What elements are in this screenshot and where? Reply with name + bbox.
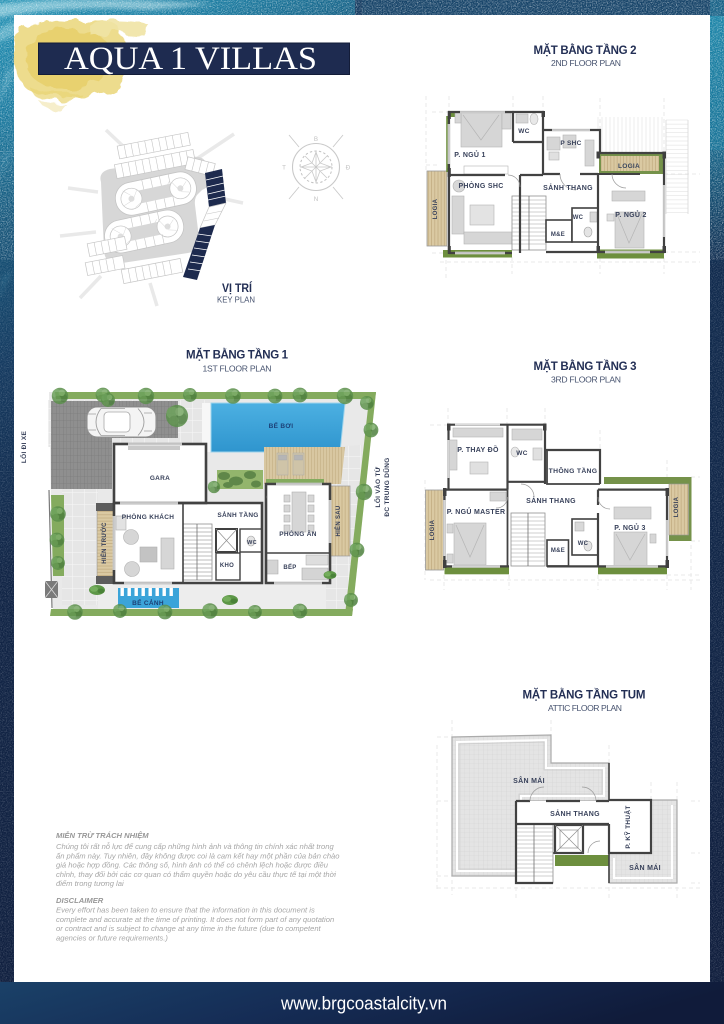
svg-text:HIÊN SAU: HIÊN SAU [334, 505, 342, 536]
svg-text:PHÒNG ĂN: PHÒNG ĂN [279, 529, 316, 538]
svg-text:Chúng tôi rất nỗ lực để cung c: Chúng tôi rất nỗ lực để cung cấp những h… [56, 842, 334, 851]
svg-text:điểm trong tương lai: điểm trong tương lai [56, 879, 124, 888]
svg-text:WC: WC [247, 540, 257, 546]
svg-text:PHÒNG SHC: PHÒNG SHC [458, 181, 503, 190]
svg-text:AQUA 1 VILLAS: AQUA 1 VILLAS [64, 41, 317, 77]
svg-text:agencies or future requirement: agencies or future requirements.) [56, 933, 168, 942]
svg-text:P. NGỦ 2: P. NGỦ 2 [615, 210, 646, 219]
svg-text:SẢNH THANG: SẢNH THANG [543, 183, 593, 192]
svg-text:www.brgcoastalcity.vn: www.brgcoastalcity.vn [280, 994, 447, 1014]
svg-text:BỂ CẢNH: BỂ CẢNH [132, 598, 164, 607]
svg-text:B: B [314, 136, 318, 143]
svg-text:KHO: KHO [220, 563, 234, 569]
svg-text:giá hoặc hợp đồng. Các thông s: giá hoặc hợp đồng. Các thông số, hình ản… [56, 861, 329, 870]
svg-text:T: T [282, 165, 286, 172]
svg-text:SẢNH THANG: SẢNH THANG [550, 809, 600, 818]
svg-text:SÂN MÁI: SÂN MÁI [513, 776, 545, 785]
svg-text:P. NGỦ 3: P. NGỦ 3 [614, 523, 645, 532]
svg-text:WC: WC [518, 128, 529, 135]
svg-text:N: N [314, 196, 318, 203]
svg-text:WC: WC [573, 215, 584, 221]
svg-text:VỊ TRÍ: VỊ TRÍ [222, 282, 253, 295]
svg-text:M&E: M&E [551, 548, 565, 554]
svg-text:MẶT BẰNG TẦNG 1: MẶT BẰNG TẦNG 1 [186, 349, 289, 362]
svg-text:LOGIA: LOGIA [430, 519, 436, 540]
svg-text:Every effort has been taken to: Every effort has been taken to ensure th… [56, 906, 315, 915]
svg-text:LOGIA: LOGIA [433, 198, 439, 219]
svg-text:SÂN MÁI: SÂN MÁI [629, 863, 661, 872]
svg-text:ấn phẩm này. Tuy nhiên, đây kh: ấn phẩm này. Tuy nhiên, đây không được c… [56, 851, 340, 860]
svg-text:GARA: GARA [150, 475, 170, 482]
svg-text:P. NGỦ MASTER: P. NGỦ MASTER [447, 507, 506, 516]
svg-text:MIỄN TRỪ TRÁCH NHIỆM: MIỄN TRỪ TRÁCH NHIỆM [56, 831, 149, 840]
svg-text:P. KỸ THUẬT: P. KỸ THUẬT [623, 805, 632, 848]
svg-text:WC: WC [516, 450, 527, 457]
svg-text:P SHC: P SHC [560, 140, 581, 147]
svg-text:KEY PLAN: KEY PLAN [217, 295, 255, 305]
svg-text:complete and accurate at the t: complete and accurate at the time of pri… [56, 915, 334, 924]
svg-text:MẶT BẰNG TẦNG TUM: MẶT BẰNG TẦNG TUM [523, 689, 646, 702]
svg-text:Đ: Đ [346, 165, 351, 172]
svg-text:3RD FLOOR PLAN: 3RD FLOOR PLAN [551, 375, 621, 385]
svg-text:BẾP: BẾP [283, 564, 296, 571]
svg-text:LOGIA: LOGIA [674, 496, 680, 517]
svg-text:SẢNH THANG: SẢNH THANG [526, 496, 576, 505]
svg-text:LOGIA: LOGIA [618, 163, 640, 170]
svg-text:PHÒNG KHÁCH: PHÒNG KHÁCH [122, 512, 174, 521]
svg-text:WC: WC [578, 541, 589, 547]
svg-text:1ST FLOOR PLAN: 1ST FLOOR PLAN [203, 364, 272, 374]
svg-text:MẶT BẰNG TẦNG 2: MẶT BẰNG TẦNG 2 [534, 44, 637, 57]
svg-text:or contract and is subject to: or contract and is subject to change at … [56, 924, 322, 933]
svg-text:chỉnh, thay đổi bởi các cơ qua: chỉnh, thay đổi bởi các cơ quan có thẩm … [56, 870, 336, 879]
svg-text:DISCLAIMER: DISCLAIMER [56, 896, 104, 905]
svg-text:MẶT BẰNG TẦNG 3: MẶT BẰNG TẦNG 3 [534, 360, 637, 373]
svg-text:P. NGỦ 1: P. NGỦ 1 [454, 150, 485, 159]
svg-text:ĐC TRUNG DŨNG: ĐC TRUNG DŨNG [382, 457, 391, 516]
svg-text:2ND FLOOR PLAN: 2ND FLOOR PLAN [551, 58, 621, 68]
svg-text:ATTIC FLOOR PLAN: ATTIC FLOOR PLAN [548, 703, 622, 713]
svg-text:HIÊN TRƯỚC: HIÊN TRƯỚC [100, 522, 108, 564]
svg-text:BỂ BƠI: BỂ BƠI [269, 421, 294, 430]
svg-text:M&E: M&E [551, 232, 565, 238]
